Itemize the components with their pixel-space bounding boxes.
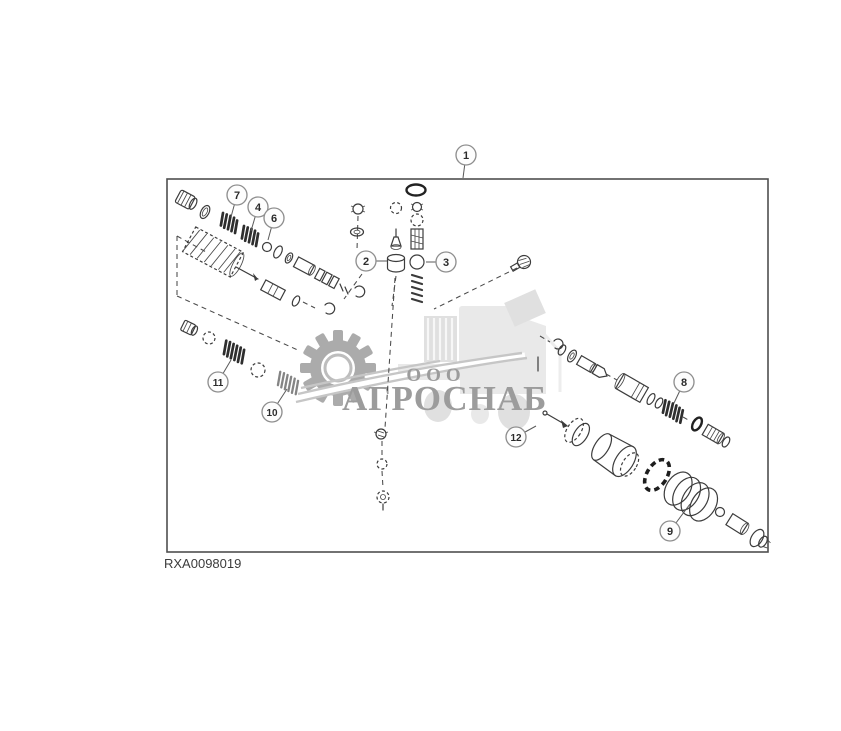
figure-label: RXA0098019 [164,556,241,571]
bolt-part [509,253,533,275]
svg-text:11: 11 [213,378,224,389]
poppet-part [391,229,401,250]
o-ring-part [407,185,426,196]
flange-cap-part [561,415,594,449]
watermark: ООО АГРОСНАБ [296,289,560,430]
pin-tip [561,420,568,428]
svg-text:8: 8 [681,377,687,389]
callout-7: 7 [227,185,247,217]
plug-part [175,190,199,212]
retainer-part [340,284,348,294]
seat-cup-part [388,255,405,273]
spool-part [315,268,340,288]
clip-part [325,303,335,314]
chain-left-middle [180,320,302,395]
svg-text:1: 1 [463,150,469,162]
piston-body-part [587,429,645,483]
ball-part [410,255,424,269]
spring-part [217,212,241,233]
washer-part [566,349,579,364]
o-ring-part [251,363,265,377]
ring-part [391,203,402,214]
parts-catalog-image: ООО АГРОСНАБ [0,0,841,731]
o-ring-part [203,332,215,344]
o-ring-part [198,204,212,220]
valve-sleeve-part [613,372,648,402]
svg-text:7: 7 [234,190,240,202]
washer-part [291,295,301,308]
toothed-nut-part [377,491,389,510]
nut-part [374,429,388,439]
nut-part [351,204,365,214]
sleeve-part [293,257,316,276]
washer-part [721,436,732,449]
nut-part [411,203,423,212]
spring-part [412,275,422,302]
callout-1: 1 [456,145,476,178]
callout-2: 2 [356,251,387,271]
washer-part [557,344,568,357]
spring-part [220,340,248,363]
ring-part [377,459,387,469]
end-cap-part [747,527,774,553]
spool-part [261,280,286,300]
svg-text:3: 3 [443,257,449,269]
parts-diagram-svg: ООО АГРОСНАБ [0,0,841,731]
chain-top-left [175,190,365,297]
poppet-part [592,365,609,381]
o-ring-part [272,245,284,260]
chain-small-column [374,429,389,510]
chain-centre-stack [351,185,426,307]
spring-part [659,399,687,423]
toothed-nut-part [411,214,423,226]
o-ring-part [690,416,704,432]
svg-text:12: 12 [510,433,522,444]
valve-body-part [183,227,247,279]
callout-9: 9 [660,504,690,541]
seal-ring-part [640,455,675,494]
callout-6: 6 [264,208,284,240]
callout-8: 8 [674,372,694,403]
callout-3: 3 [426,252,456,272]
splined-guide-part [411,229,423,249]
ball-part [716,508,725,517]
plug-part [726,514,751,536]
svg-text:9: 9 [667,526,673,538]
chain-lower-right [543,411,774,553]
callout-12: 12 [506,426,536,447]
spring-part [238,225,262,246]
svg-text:4: 4 [255,202,262,214]
spring-part-light [274,371,302,394]
svg-text:2: 2 [363,256,369,268]
ball-part [263,243,272,252]
watermark-company-text: АГРОСНАБ [342,379,547,418]
callout-11: 11 [208,360,231,392]
svg-text:10: 10 [266,408,278,419]
callout-10: 10 [262,389,287,422]
washer-part [284,252,294,265]
plug-part [180,320,199,337]
clip-part [355,286,365,297]
svg-text:6: 6 [271,213,277,225]
chain-upper-right [538,339,731,448]
